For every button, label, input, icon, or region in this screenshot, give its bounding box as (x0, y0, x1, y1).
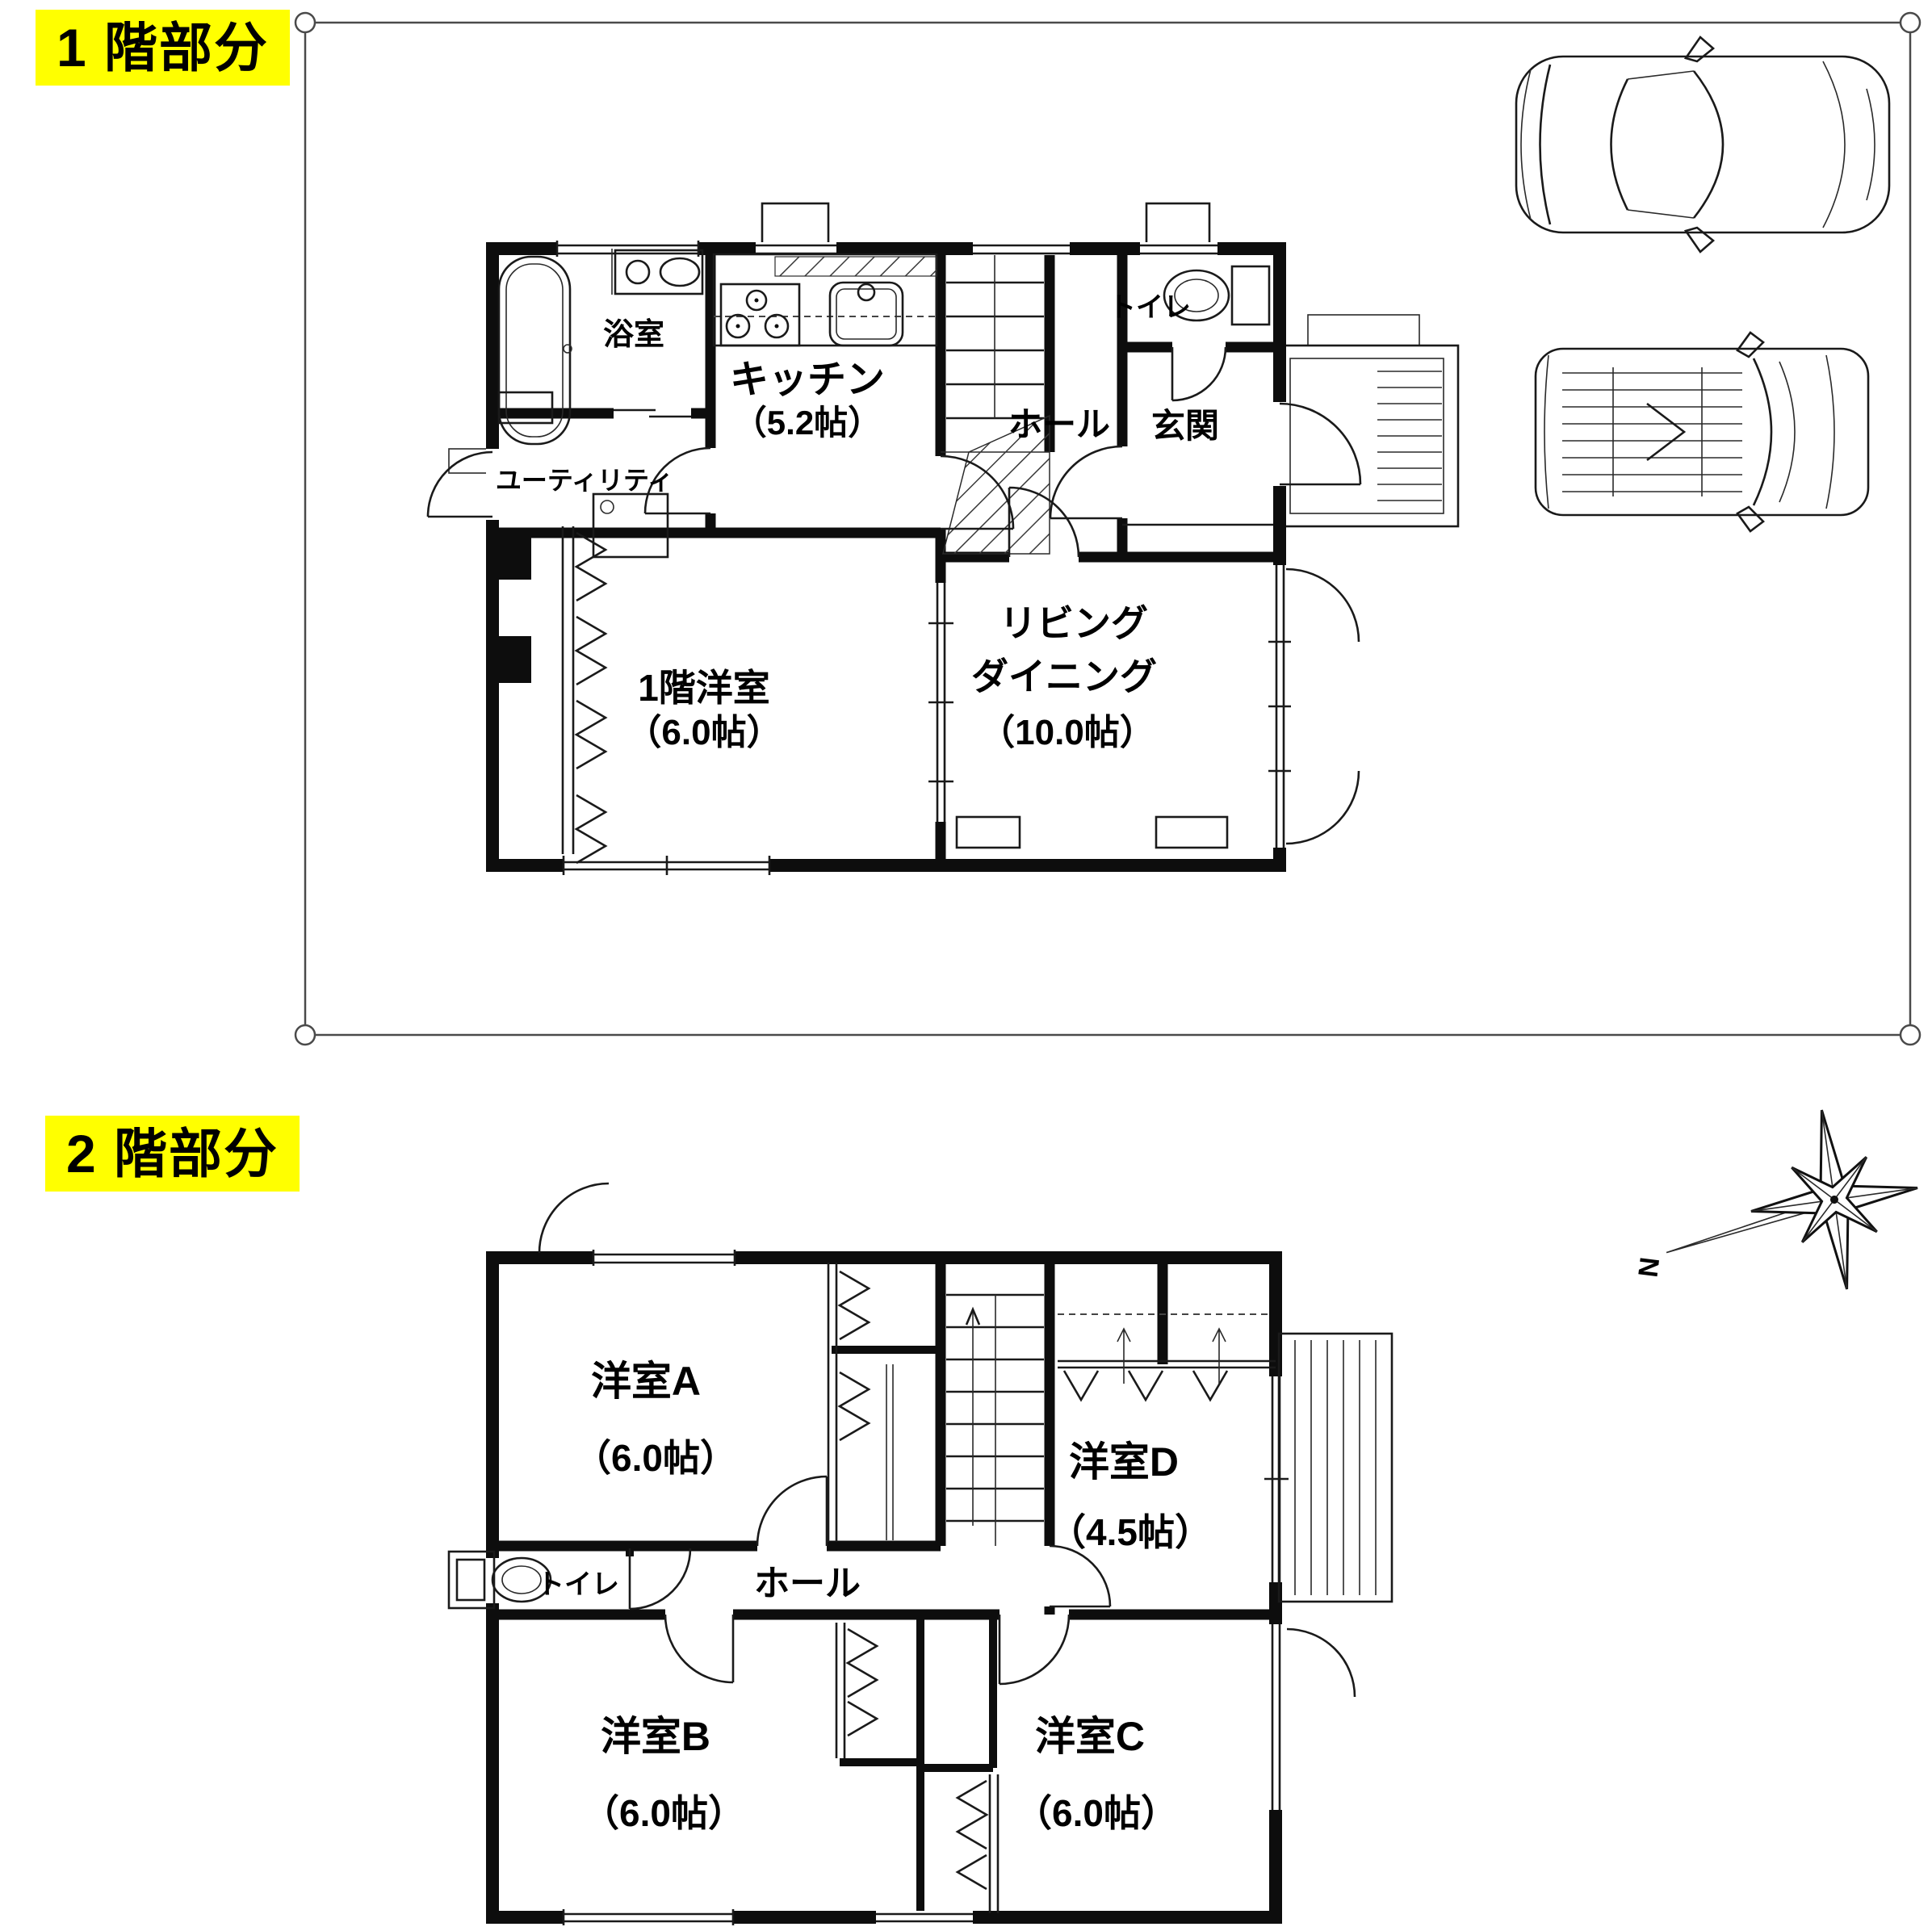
closet-room-b (836, 1623, 877, 1758)
room-c-label: 洋室C (1035, 1714, 1145, 1759)
room-a-label: 洋室A (591, 1359, 701, 1404)
room-western-label: 1階洋室 (638, 667, 770, 709)
floorplan-page: 1 階部分 2 階部分 (0, 0, 1932, 1931)
compass-icon: N (1614, 1099, 1930, 1319)
room-hall1f-label: ホール (1008, 405, 1110, 443)
closet-room-c (958, 1774, 998, 1913)
floor1-plan: 浴室 キッチン （5.2帖） ユーティリティ トイレ ホール 玄関 1階洋室 （… (295, 13, 1920, 1045)
room-living-label-2: ダイニング (971, 656, 1157, 697)
room-kitchen-size: （5.2帖） (733, 404, 882, 442)
sliding-partition (928, 583, 953, 822)
toilet-icon-2f (449, 1552, 551, 1608)
room-western-size: （6.0帖） (626, 713, 782, 752)
balcony (1279, 1334, 1392, 1602)
room-kitchen-label: キッチン (730, 358, 885, 401)
room-d-size: （4.5帖） (1049, 1511, 1212, 1553)
car-hatchback-icon (1516, 37, 1889, 252)
compass-north-label: N (1632, 1255, 1666, 1279)
room-c-size: （6.0帖） (1015, 1792, 1178, 1834)
stove-icon (721, 284, 799, 346)
closet-room-a (828, 1263, 893, 1542)
car-van-icon (1536, 333, 1868, 531)
room-living-label-1: リビング (1000, 602, 1148, 644)
room-bath-label: 浴室 (603, 317, 664, 352)
room-living-size: （10.0帖） (979, 713, 1155, 752)
room-utility-label: ユーティリティ (496, 466, 673, 495)
living-furniture (957, 817, 1227, 848)
room-hall2f-label: ホール (754, 1564, 861, 1603)
stairs-icon-1f (941, 249, 1050, 554)
sink-icon (830, 283, 903, 346)
floor2-plan: 洋室A （6.0帖） 洋室D （4.5帖） トイレ ホール 洋室B （6.0帖）… (449, 1099, 1930, 1925)
stairs-icon-2f (946, 1295, 1044, 1546)
entrance-porch (1276, 346, 1458, 526)
room-toilet1f-label: トイレ (1108, 292, 1191, 323)
room-d-label: 洋室D (1069, 1439, 1179, 1485)
room-toilet2f-label: トイレ (537, 1569, 619, 1600)
room-b-label: 洋室B (601, 1714, 710, 1759)
washstand-icon (612, 249, 702, 295)
closet-western-room (563, 526, 606, 863)
doors-2f (630, 1477, 1110, 1684)
room-b-size: （6.0帖） (582, 1792, 745, 1834)
room-a-size: （6.0帖） (574, 1437, 737, 1479)
room-entrance-label: 玄関 (1151, 407, 1219, 445)
